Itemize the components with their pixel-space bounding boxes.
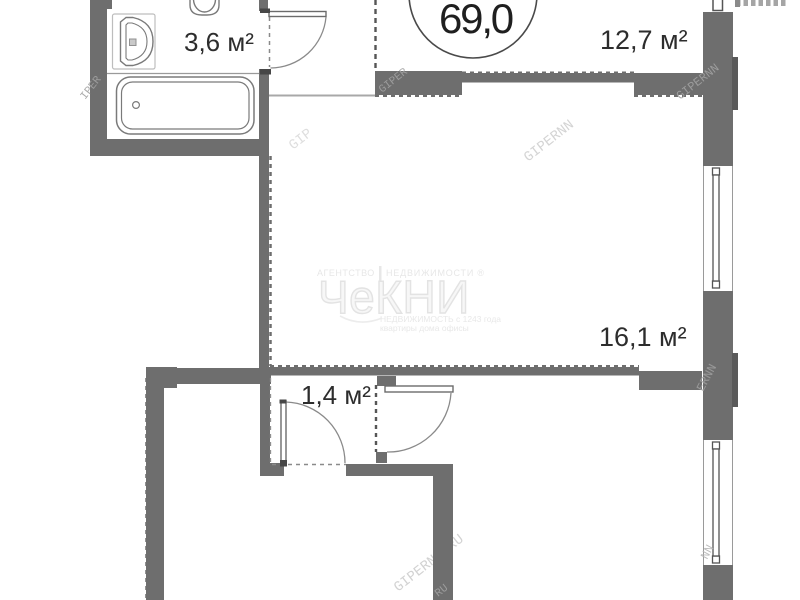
svg-text:3,6 м²: 3,6 м² [184,27,254,57]
svg-text:16,1 м²: 16,1 м² [599,322,687,352]
svg-text:квартиры дома офисы: квартиры дома офисы [380,323,469,333]
svg-text:GIPERNN.RU: GIPERNN.RU [391,532,467,596]
svg-text:1,4 м²: 1,4 м² [301,380,371,410]
svg-text:GIP: GIP [286,126,316,154]
svg-text:GIPERNN: GIPERNN [521,117,577,166]
svg-text:69,0: 69,0 [439,0,513,42]
svg-text:12,7 м²: 12,7 м² [600,25,688,55]
